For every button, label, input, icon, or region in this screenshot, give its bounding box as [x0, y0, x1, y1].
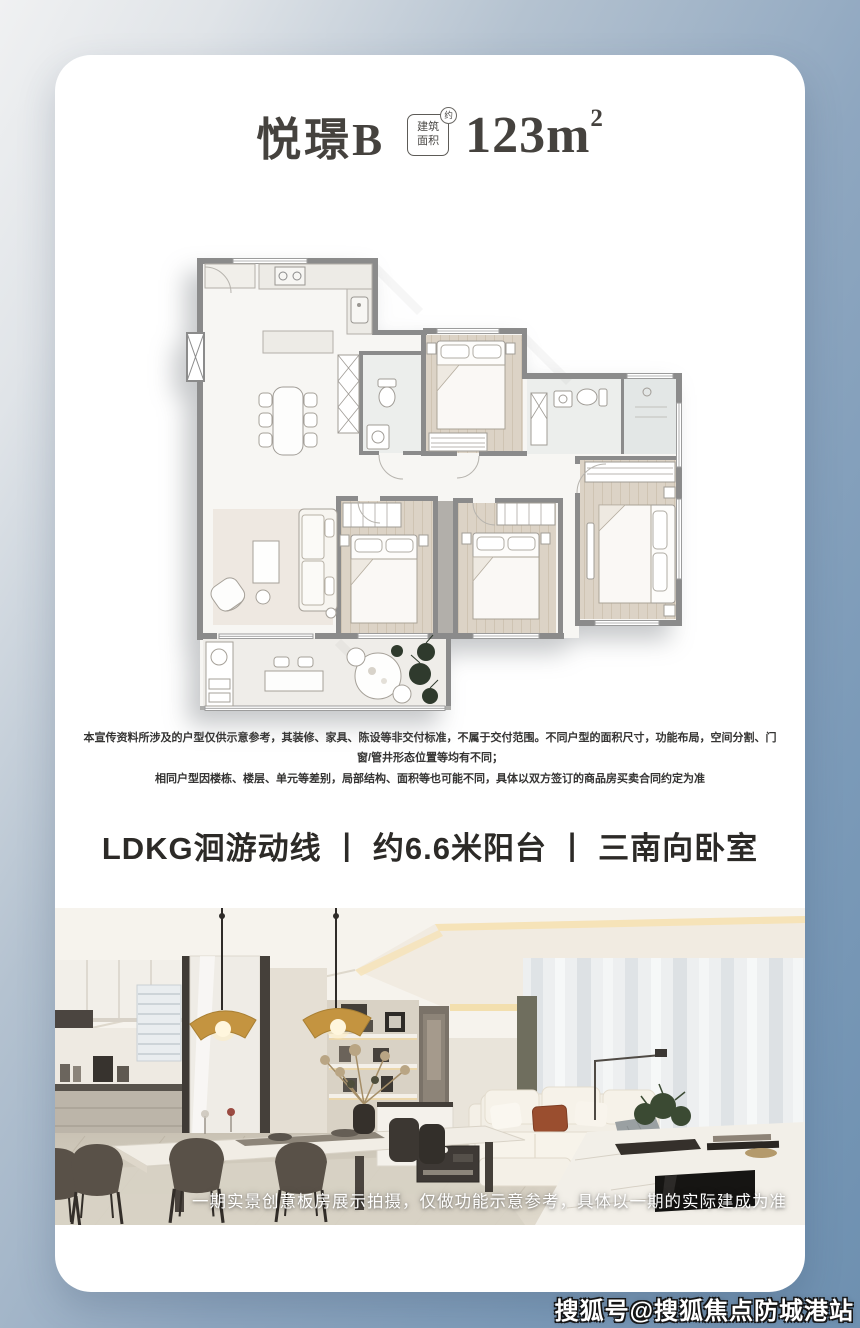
disclaimer-line1: 本宣传资料所涉及的户型仅供示意参考，其装修、家具、陈设等非交付标准，不属于交付范… [77, 728, 783, 769]
feature-highlights: LDKG洄游动线 丨 约6.6米阳台 丨 三南向卧室 [55, 823, 805, 868]
area-badge: 约 建筑 面积 [407, 114, 449, 156]
interior-photo: 一期实景创意板房展示拍摄，仅做功能示意参考，具体以一期的实际建成为准 [55, 908, 805, 1225]
area-badge-line2: 面积 [417, 135, 439, 149]
floor-plan [175, 247, 685, 712]
content-card: 悦璟B 约 建筑 面积 123m2 [55, 55, 805, 1292]
area-superscript: 2 [590, 105, 604, 132]
floor-plan-svg [175, 247, 685, 712]
photo-caption: 一期实景创意板房展示拍摄，仅做功能示意参考，具体以一期的实际建成为准 [192, 1188, 787, 1212]
area-value: 123m2 [465, 105, 604, 165]
page-background: 悦璟B 约 建筑 面积 123m2 [0, 0, 860, 1328]
disclaimer-line2: 相同户型因楼栋、楼层、单元等差别，局部结构、面积等也可能不同，具体以双方签订的商… [77, 769, 783, 789]
area-number: 123m [465, 107, 590, 164]
approx-mark: 约 [440, 107, 457, 124]
interior-photo-svg [55, 908, 805, 1225]
area-badge-line1: 建筑 [417, 121, 439, 135]
disclaimer: 本宣传资料所涉及的户型仅供示意参考，其装修、家具、陈设等非交付标准，不属于交付范… [77, 728, 783, 789]
page-title: 悦璟B [256, 103, 385, 168]
header: 悦璟B 约 建筑 面积 123m2 [55, 55, 805, 167]
watermark: 搜狐号@搜狐焦点防城港站 [555, 1291, 854, 1326]
